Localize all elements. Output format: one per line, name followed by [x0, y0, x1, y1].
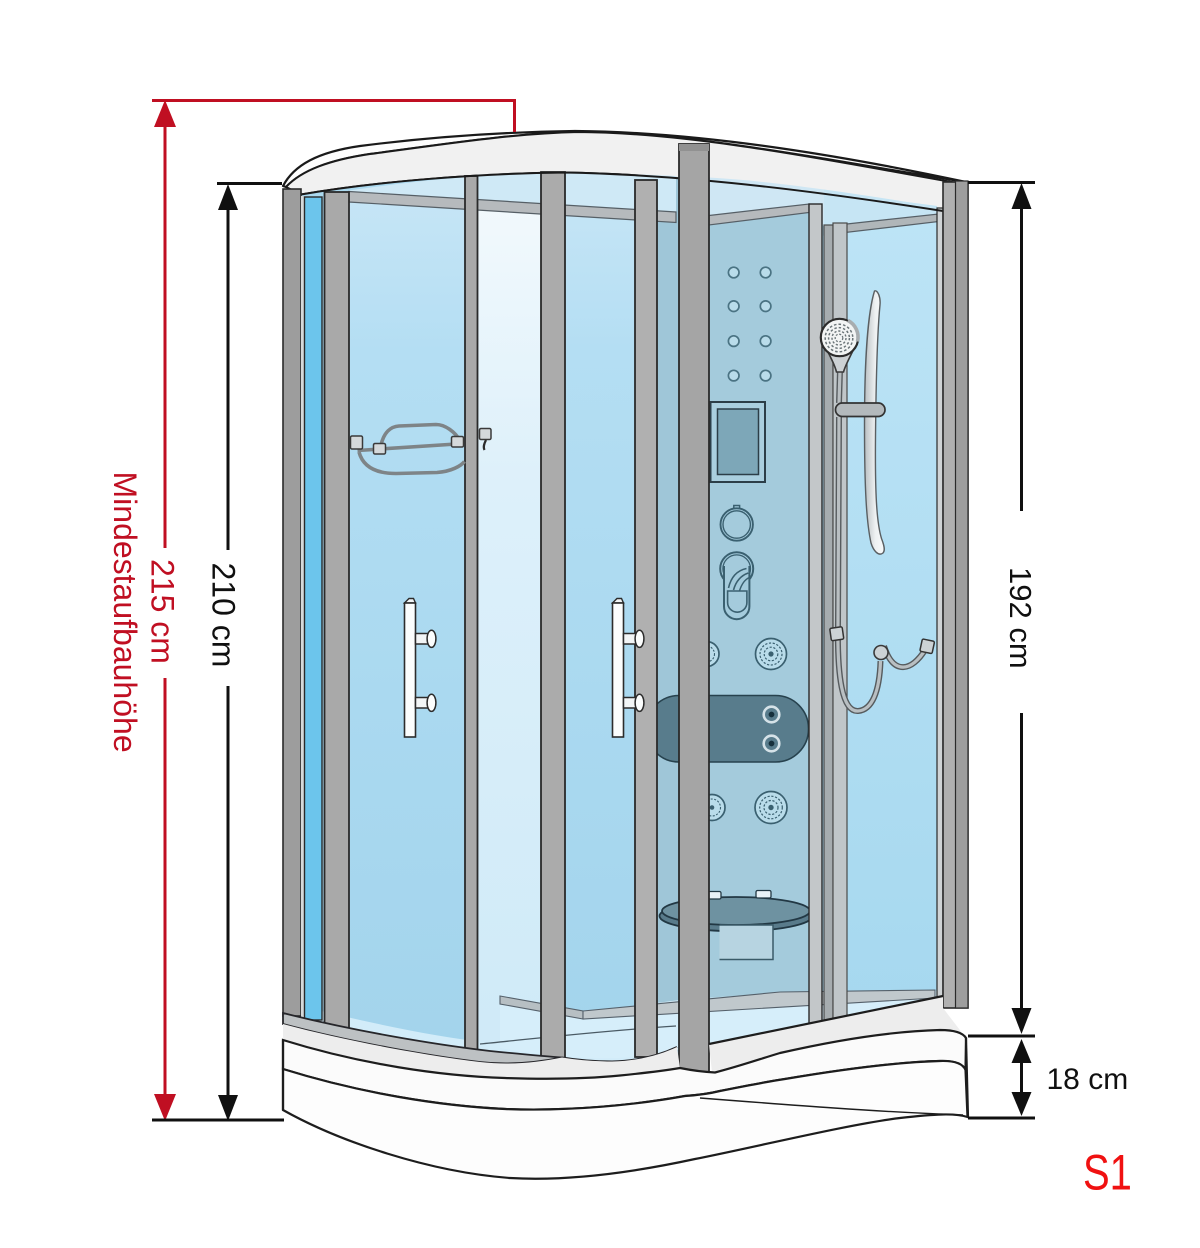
svg-text:Mindestaufbauhöhe: Mindestaufbauhöhe	[107, 472, 143, 753]
svg-text:18 cm: 18 cm	[1047, 1063, 1129, 1096]
svg-text:S1: S1	[1083, 1144, 1132, 1200]
svg-text:210 cm: 210 cm	[206, 563, 242, 668]
svg-text:192 cm: 192 cm	[1003, 567, 1038, 669]
svg-text:215 cm: 215 cm	[145, 559, 181, 664]
